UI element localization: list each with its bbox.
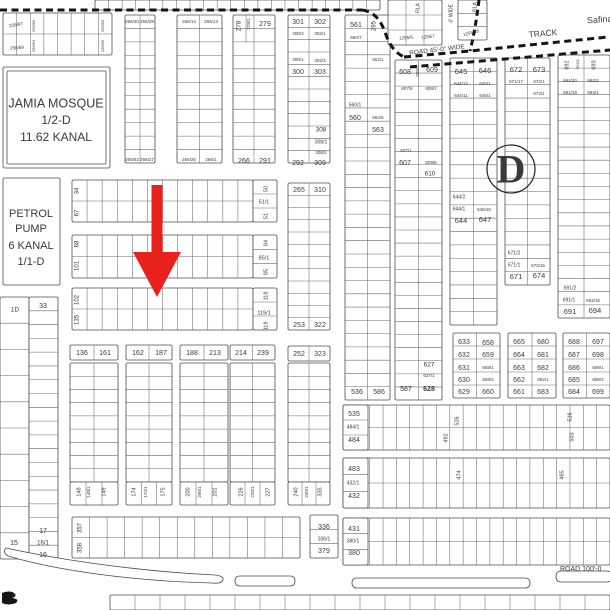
plot-label: 292	[292, 160, 304, 167]
plot-label: 698	[592, 352, 604, 359]
plot-label: 607	[399, 160, 411, 167]
plot-label: 686	[568, 365, 580, 372]
plot-label: 646/10	[477, 207, 491, 212]
plot-label: 659/1	[482, 365, 494, 370]
plot-label: 692/1	[575, 58, 580, 69]
plot-block	[126, 363, 172, 482]
road-median-strip	[352, 578, 530, 588]
plot-label: 323	[314, 351, 326, 358]
plot-label: 645	[455, 67, 468, 76]
plot-label: 680	[537, 339, 549, 346]
plot-label: 308	[316, 127, 327, 134]
plot-label: 302	[314, 19, 326, 26]
plot-label: 665	[513, 339, 525, 346]
plot-label: 200/1	[197, 486, 202, 498]
plot-label: 51	[263, 213, 269, 219]
plot-label: 536	[351, 389, 363, 396]
plot-label: 631	[458, 365, 470, 372]
plot-label: 84	[263, 240, 269, 246]
plot-block	[72, 517, 300, 558]
plot-label: 278/1	[246, 18, 251, 30]
plot-label: 691/1	[563, 297, 576, 303]
plot-label: RLA	[415, 2, 421, 12]
plot-label: 688	[568, 339, 580, 346]
plot-label: 119/1	[257, 310, 270, 316]
plot-label: 266/39	[140, 19, 154, 24]
plot-label: 673/1	[533, 91, 545, 96]
plot-label: 673/16	[531, 263, 545, 268]
plot-label: 200	[185, 487, 191, 496]
plot-label: 265	[293, 187, 305, 194]
plot-label: 465	[559, 470, 565, 479]
mosque-name: JAMIA MOSQUE	[8, 96, 103, 110]
plot-label: 174	[131, 487, 137, 496]
plot-label: 561	[350, 22, 362, 29]
plot-block	[343, 518, 610, 565]
plot-label: 17	[39, 528, 47, 535]
plot-label: 492	[443, 433, 449, 442]
plot-label: 432	[348, 493, 360, 500]
plot-label: 672	[510, 65, 523, 74]
plot-label: 629	[458, 389, 470, 396]
road-median-strip	[235, 576, 295, 586]
plot-label: 118	[263, 292, 269, 301]
plot-label: 630	[458, 377, 470, 384]
plot-label: 632	[458, 352, 470, 359]
plot-label: 68	[75, 240, 81, 247]
plot-block	[343, 458, 610, 508]
plot-label: 309	[314, 160, 326, 167]
plot-label: 253	[293, 322, 305, 329]
plot-label: 300	[292, 69, 304, 76]
plot-label: 148/1	[86, 486, 91, 498]
plot-label: 644/1	[453, 206, 466, 212]
petrol-pump-sector: 1/1-D	[18, 256, 45, 268]
plot-label: 586	[373, 389, 385, 396]
plot-label: 697	[592, 339, 604, 346]
plot-label: 50	[263, 186, 269, 192]
plot-label: 474	[456, 470, 462, 479]
plot-label: 673	[533, 65, 546, 74]
plot-label: 431	[348, 526, 360, 533]
plot-label: 201	[212, 487, 218, 496]
plot-label: 681	[537, 352, 549, 359]
plot-label: 698/1	[592, 365, 604, 370]
plot-label: 683	[537, 389, 549, 396]
plot-block	[180, 363, 228, 482]
plot-label: 560	[349, 115, 361, 122]
plot-label: 607/6	[401, 86, 413, 91]
plot-label: 279	[259, 21, 271, 28]
plot-label: 646/1	[479, 93, 491, 98]
petrol-pump-name: PETROL	[9, 208, 53, 220]
plot-map-canvas: 256/67256/69256/66256/53256/50256/59JAMI…	[0, 0, 610, 610]
plot-label: 672/1	[533, 79, 545, 84]
plot-label: 136	[76, 350, 88, 357]
petrol-pump-name: PUMP	[15, 223, 47, 235]
plot-label: 587	[400, 386, 412, 393]
plot-block	[70, 363, 118, 482]
plot-label: 484/1	[347, 424, 360, 430]
plot-label: 295	[372, 20, 378, 31]
plot-label: 357	[78, 522, 84, 533]
plot-label: 266/40	[125, 19, 139, 24]
plot-label: 300/3	[292, 31, 304, 36]
plot-label: 671/17	[509, 79, 523, 84]
mosque-sector: 1/2-D	[41, 113, 71, 127]
plot-label: 664	[513, 352, 525, 359]
plot-label: 34	[75, 187, 81, 194]
petrol-pump-area: 6 KANAL	[8, 240, 53, 252]
plot-label: 148	[76, 487, 82, 496]
plot-label: 302/3	[314, 58, 326, 63]
plot-label: 266/52	[125, 157, 139, 162]
plot-label: 644/2	[453, 194, 466, 200]
plot-label: 660	[482, 389, 494, 396]
plot-label: 380/1	[347, 538, 360, 544]
plot-label: 693/19	[586, 298, 600, 303]
plot-label: 646	[479, 66, 492, 75]
plot-label: 563	[372, 127, 384, 134]
plot-block	[345, 15, 390, 400]
plot-block	[343, 405, 610, 450]
plot-label: 662	[513, 377, 525, 384]
plot-label: 187	[155, 350, 167, 357]
plot-block	[29, 297, 58, 559]
plot-label: 609/8	[425, 160, 437, 165]
plot-label: 484	[348, 437, 360, 444]
plot-label: 684	[568, 389, 580, 396]
plot-label: 562/6	[372, 115, 384, 120]
plot-label: 336	[318, 524, 330, 531]
plot-label: 308/2	[315, 150, 327, 155]
plot-label: 607/1	[400, 148, 412, 153]
plot-label: 560/1	[349, 102, 362, 108]
plot-label: 644/12	[454, 81, 468, 86]
plot-label: 302/1	[314, 31, 326, 36]
plot-label: 102	[75, 294, 81, 305]
plot-label: 67	[75, 209, 81, 216]
plot-label: 380	[348, 550, 360, 557]
road-100-label: ROAD 100'-0	[560, 566, 602, 573]
plot-label: 335	[317, 487, 323, 496]
plot-label: 691/2	[564, 285, 577, 291]
plot-label: 226	[238, 487, 244, 496]
plot-label: 308/1	[315, 139, 328, 145]
plot-label: 560/7	[350, 35, 362, 40]
plot-label: 692	[564, 60, 570, 69]
plot-label: 693	[591, 60, 597, 69]
plot-label: 85/1	[259, 255, 270, 261]
plot-label: 256/66	[31, 19, 36, 32]
plot-label: 694	[589, 306, 602, 315]
plot-label: 609	[426, 67, 438, 74]
plot-label: 699	[592, 389, 604, 396]
plot-label: 659	[482, 352, 494, 359]
plot-label: 227	[265, 487, 271, 496]
road-label-vertical: -0' WIDE	[448, 3, 454, 24]
plot-label: 671/2	[508, 250, 521, 256]
track-label: TRACK	[528, 27, 558, 40]
plot-label: 310	[314, 187, 326, 194]
mosque-area: 11.62 KANAL	[20, 130, 92, 144]
plot-block	[125, 15, 155, 163]
plot-label: 300/1	[292, 57, 304, 62]
plot-label: 301	[292, 19, 304, 26]
plot-label: 682	[537, 365, 549, 372]
plot-label: 633	[458, 339, 470, 346]
plot-block	[230, 363, 275, 482]
plot-label: 322	[314, 322, 326, 329]
plot-label: 610	[425, 171, 436, 178]
plot-label: 252	[293, 351, 305, 358]
plot-label: 628	[423, 386, 435, 393]
plot-label: 291	[259, 158, 271, 165]
plot-label: 15	[10, 540, 18, 547]
plot-label: 303	[314, 69, 326, 76]
plot-block	[110, 595, 610, 610]
plot-label: 240/1	[304, 486, 309, 498]
plot-label: 691/20	[563, 78, 577, 83]
plot-label: 174/1	[143, 486, 148, 498]
plot-label: 627/1	[423, 373, 435, 378]
plot-block	[177, 15, 222, 163]
plot-label: 175	[160, 487, 166, 496]
plot-label: 135	[75, 314, 81, 325]
plot-label: 682/1	[537, 377, 549, 382]
plot-label: 644/11	[454, 93, 468, 98]
plot-label: 516	[567, 412, 573, 421]
plot-label: 663	[513, 365, 525, 372]
plot-label: 336/1	[318, 536, 331, 542]
plot-label: 687	[568, 352, 580, 359]
plot-label: 240	[293, 487, 299, 496]
plot-label: 1D	[11, 307, 20, 314]
plot-label: 671/1	[508, 262, 521, 268]
plot-label: 609/2	[425, 86, 437, 91]
plot-label: 698/2	[592, 377, 604, 382]
plot-label: 278	[236, 20, 243, 31]
plot-label: 645/1	[479, 81, 491, 86]
plot-label: 693/1	[587, 90, 599, 95]
plot-label: 627	[424, 362, 435, 369]
plot-label: 161	[99, 350, 111, 357]
plot-label: 226/1	[250, 486, 255, 498]
plot-label: 358	[78, 542, 84, 553]
plot-label: 213	[209, 350, 221, 357]
plot-label: 239	[257, 350, 269, 357]
sector-letter: D	[497, 147, 526, 192]
plot-label: 85	[263, 269, 269, 275]
plot-label: 691	[564, 307, 577, 316]
plot-label: 266/27	[140, 157, 154, 162]
plot-label: 162	[132, 350, 144, 357]
cutoff-glyph	[2, 592, 17, 605]
plot-label: 16/1	[37, 541, 49, 547]
plot-label: 692/2	[587, 78, 599, 83]
plot-label: 609/1	[415, 65, 420, 77]
plot-block	[288, 183, 330, 330]
plot-label: 674	[533, 271, 546, 280]
plot-label: 562/1	[372, 57, 384, 62]
plot-label: 214	[235, 350, 247, 357]
plot-label: 119	[263, 322, 269, 331]
plot-label: 266/1	[205, 157, 217, 162]
plot-block	[395, 60, 442, 400]
plot-label: 685	[568, 377, 580, 384]
plot-label: 266	[238, 158, 250, 165]
plot-block	[0, 297, 29, 559]
plot-label: 16	[39, 552, 47, 559]
plot-label: 256/53	[31, 39, 36, 52]
plot-label: 658	[482, 340, 494, 347]
plot-label: 644	[455, 216, 468, 225]
plot-label: 691/19	[563, 90, 577, 95]
plot-map: 256/67256/69256/66256/53256/50256/59JAMI…	[0, 0, 610, 610]
plot-block	[288, 363, 330, 482]
plot-label: 608	[399, 69, 411, 76]
plot-block	[72, 288, 253, 330]
plot-label: 51/1	[259, 199, 270, 205]
plot-label: 647	[479, 215, 492, 224]
plot-label: 671	[510, 272, 523, 281]
plot-label: 188	[186, 350, 198, 357]
plot-label: 256/50	[100, 19, 105, 32]
plot-label: 503	[569, 432, 575, 441]
plot-label: 661	[513, 389, 525, 396]
plot-label: 266/13	[204, 19, 218, 24]
plot-label: 266/14	[182, 19, 196, 24]
plot-label: 149	[101, 487, 107, 496]
plot-label: 535	[348, 411, 360, 418]
plot-block-outline	[29, 297, 58, 559]
plot-label: 101	[75, 260, 81, 271]
plot-label: 256/59	[100, 39, 105, 52]
plot-label: RLA	[472, 1, 478, 11]
safina-label: Safina	[587, 14, 610, 26]
plot-label: 526	[454, 416, 460, 425]
plot-label: 33	[39, 303, 47, 310]
plot-block	[233, 15, 275, 163]
plot-label: 659/2	[482, 377, 494, 382]
plot-label: 266/26	[182, 157, 196, 162]
plot-label: 483	[348, 466, 360, 473]
plot-label: 432/1	[347, 480, 360, 486]
plot-label: 379	[318, 548, 330, 555]
